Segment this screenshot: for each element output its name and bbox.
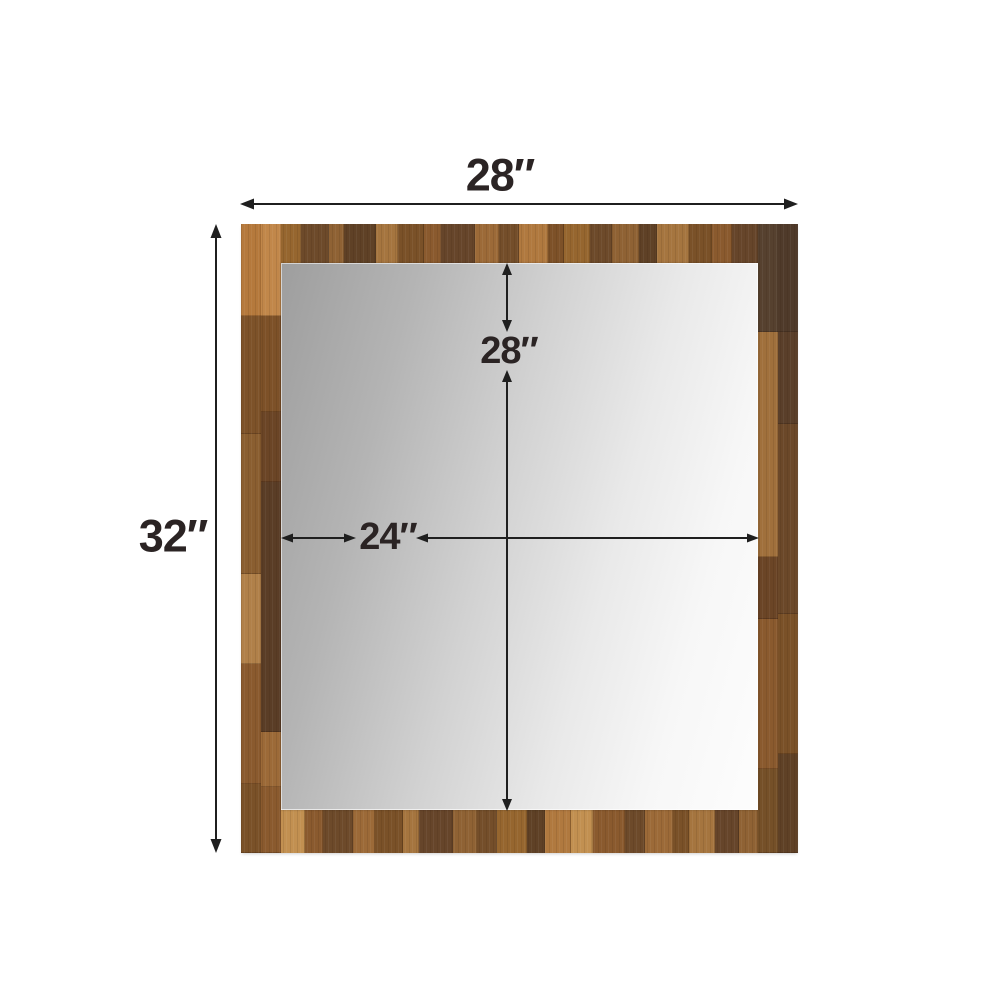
wood-strip bbox=[715, 810, 739, 853]
wood-piece bbox=[758, 619, 778, 769]
wood-strip bbox=[612, 224, 640, 263]
wood-strip bbox=[305, 810, 323, 853]
wood-strip bbox=[689, 810, 715, 853]
wood-piece bbox=[241, 784, 261, 853]
wood-strip bbox=[323, 810, 353, 853]
wood-strip bbox=[645, 810, 673, 853]
wood-strip bbox=[593, 810, 625, 853]
outer-height-label: 32″ bbox=[139, 514, 208, 559]
wood-strip bbox=[353, 810, 375, 853]
wood-piece bbox=[261, 787, 281, 853]
wood-strip bbox=[732, 224, 758, 263]
wood-piece bbox=[758, 224, 778, 332]
wood-piece bbox=[261, 412, 281, 482]
wood-strip bbox=[453, 810, 477, 853]
wood-piece bbox=[261, 732, 281, 787]
wood-piece bbox=[758, 769, 778, 853]
wood-strip bbox=[571, 810, 593, 853]
wood-strip bbox=[281, 810, 305, 853]
inner-height-label: 28″ bbox=[480, 332, 537, 370]
wood-strip bbox=[424, 224, 442, 263]
wood-piece bbox=[241, 574, 261, 664]
wood-strip bbox=[301, 224, 329, 263]
wood-piece bbox=[778, 614, 798, 754]
wood-strip bbox=[441, 224, 475, 263]
wood-strip bbox=[398, 224, 424, 263]
frame-right-band bbox=[758, 224, 798, 853]
wood-strip bbox=[477, 810, 497, 853]
frame-bottom-band bbox=[281, 810, 758, 853]
mirror-frame bbox=[241, 224, 798, 853]
wood-piece bbox=[778, 224, 798, 332]
wood-strip bbox=[545, 810, 571, 853]
wood-piece bbox=[778, 332, 798, 424]
wood-strip bbox=[657, 224, 689, 263]
wood-piece bbox=[261, 316, 281, 412]
wood-strip bbox=[673, 810, 689, 853]
wood-strip bbox=[419, 810, 453, 853]
wood-strip bbox=[527, 810, 545, 853]
wood-piece bbox=[758, 332, 778, 557]
wood-strip bbox=[329, 224, 345, 263]
wood-strip bbox=[344, 224, 376, 263]
wood-strip bbox=[689, 224, 713, 263]
wood-strip bbox=[281, 224, 301, 263]
wood-strip bbox=[375, 810, 403, 853]
wood-piece bbox=[778, 754, 798, 853]
wood-strip bbox=[376, 224, 398, 263]
wood-strip bbox=[519, 224, 549, 263]
wood-strip bbox=[625, 810, 645, 853]
wood-strip bbox=[499, 224, 519, 263]
outer-height-arrow bbox=[211, 224, 222, 853]
wood-piece bbox=[241, 316, 261, 434]
wood-strip bbox=[403, 810, 419, 853]
wood-strip bbox=[739, 810, 758, 853]
wood-strip bbox=[475, 224, 499, 263]
wood-strip bbox=[497, 810, 527, 853]
wood-strip bbox=[712, 224, 732, 263]
outer-width-label: 28″ bbox=[466, 153, 535, 198]
wood-piece bbox=[778, 424, 798, 614]
wood-piece bbox=[261, 224, 281, 316]
inner-width-label: 24″ bbox=[359, 518, 416, 556]
wood-strip bbox=[590, 224, 612, 263]
diagram-canvas: 28″ 32″ 28″ 24″ bbox=[0, 0, 1000, 1000]
wood-strip bbox=[548, 224, 564, 263]
wood-strip bbox=[639, 224, 657, 263]
wood-piece bbox=[261, 482, 281, 732]
frame-left-band bbox=[241, 224, 281, 853]
frame-top-band bbox=[281, 224, 758, 263]
wood-piece bbox=[241, 434, 261, 574]
wood-piece bbox=[241, 664, 261, 784]
wood-strip bbox=[564, 224, 590, 263]
wood-piece bbox=[758, 557, 778, 619]
wood-piece bbox=[241, 224, 261, 316]
